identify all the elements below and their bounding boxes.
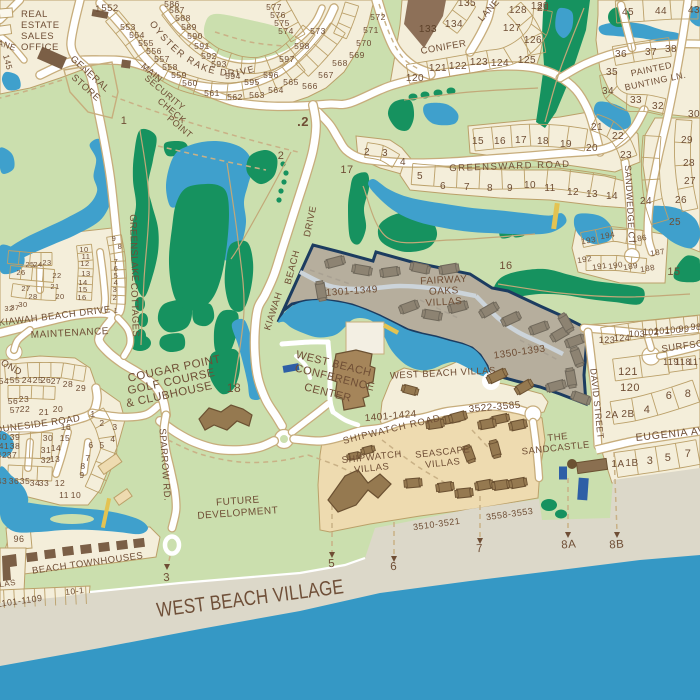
svg-text:1: 1: [90, 409, 95, 419]
svg-text:13: 13: [50, 454, 60, 464]
svg-text:21: 21: [39, 407, 49, 417]
svg-text:122: 122: [449, 61, 467, 72]
svg-text:593: 593: [211, 59, 227, 69]
svg-text:7: 7: [685, 448, 692, 460]
svg-text:32: 32: [4, 304, 13, 313]
svg-text:96: 96: [13, 534, 24, 544]
svg-text:12: 12: [567, 187, 579, 198]
svg-text:569: 569: [349, 50, 365, 60]
svg-text:8A: 8A: [561, 538, 577, 551]
svg-text:128: 128: [509, 5, 527, 16]
svg-text:18: 18: [227, 381, 241, 395]
svg-text:20: 20: [586, 143, 598, 154]
svg-text:8: 8: [118, 242, 123, 251]
svg-text:117: 117: [688, 357, 700, 367]
svg-text:43: 43: [688, 5, 700, 16]
svg-text:2B: 2B: [621, 409, 634, 420]
svg-text:30: 30: [18, 300, 27, 309]
svg-text:4: 4: [644, 404, 651, 416]
svg-text:10-1: 10-1: [65, 585, 85, 597]
svg-text:15: 15: [472, 136, 484, 147]
svg-text:125: 125: [518, 55, 536, 66]
svg-text:29: 29: [681, 135, 693, 146]
svg-text:127: 127: [503, 23, 521, 34]
svg-text:6: 6: [88, 440, 93, 450]
svg-text:5: 5: [417, 171, 423, 182]
svg-text:13: 13: [586, 189, 598, 200]
svg-text:55: 55: [10, 375, 20, 385]
svg-text:8B: 8B: [609, 538, 625, 551]
svg-text:28: 28: [63, 379, 73, 389]
svg-text:28: 28: [28, 292, 37, 301]
svg-text:16: 16: [77, 293, 86, 302]
svg-text:1: 1: [95, 4, 101, 14]
svg-text:561: 561: [204, 88, 220, 98]
svg-text:120: 120: [406, 73, 424, 84]
svg-text:570: 570: [356, 38, 372, 48]
svg-text:124: 124: [491, 58, 509, 69]
svg-text:36: 36: [615, 49, 627, 60]
svg-text:3: 3: [112, 422, 117, 432]
svg-text:11: 11: [544, 183, 555, 194]
svg-text:29: 29: [537, 3, 549, 14]
svg-text:1: 1: [121, 115, 128, 127]
svg-text:5: 5: [665, 452, 672, 464]
svg-text:18: 18: [537, 136, 549, 147]
svg-text:126: 126: [524, 35, 542, 46]
svg-text:30: 30: [688, 109, 700, 120]
svg-text:29: 29: [76, 383, 86, 393]
svg-text:25: 25: [669, 217, 681, 228]
svg-text:9: 9: [79, 470, 84, 480]
svg-text:121: 121: [618, 366, 638, 378]
svg-text:7: 7: [464, 182, 470, 193]
svg-text:35: 35: [606, 67, 618, 78]
svg-text:54: 54: [0, 376, 9, 386]
svg-text:5: 5: [328, 558, 336, 570]
svg-text:43: 43: [0, 476, 7, 486]
svg-text:16: 16: [61, 422, 71, 432]
svg-text:22: 22: [52, 271, 61, 280]
svg-text:22: 22: [612, 131, 624, 142]
svg-text:44: 44: [655, 6, 667, 17]
svg-text:34: 34: [602, 86, 614, 97]
svg-text:23: 23: [620, 150, 632, 161]
svg-text:3: 3: [647, 455, 654, 467]
svg-text:9: 9: [507, 183, 513, 194]
svg-text:13: 13: [81, 269, 90, 278]
svg-text:28: 28: [683, 158, 695, 169]
svg-text:4: 4: [110, 434, 115, 444]
svg-text:38: 38: [665, 44, 677, 55]
svg-text:33: 33: [39, 478, 49, 488]
svg-text:27: 27: [51, 376, 61, 386]
svg-text:20: 20: [55, 292, 64, 301]
svg-text:VILLAS: VILLAS: [425, 296, 462, 309]
svg-text:14: 14: [606, 191, 618, 202]
svg-text:30: 30: [43, 433, 53, 443]
svg-text:1A: 1A: [611, 459, 624, 470]
svg-text:8: 8: [685, 388, 692, 400]
svg-text:26: 26: [41, 375, 51, 385]
svg-text:2: 2: [113, 293, 118, 302]
svg-text:1B: 1B: [625, 458, 638, 469]
svg-text:OFFICE: OFFICE: [21, 42, 59, 53]
svg-text:11: 11: [59, 490, 69, 500]
svg-text:6: 6: [666, 390, 673, 402]
svg-text:577: 577: [266, 2, 282, 12]
svg-text:590: 590: [187, 31, 203, 41]
svg-text:17: 17: [340, 164, 353, 176]
svg-text:2: 2: [99, 418, 104, 428]
svg-text:6: 6: [440, 181, 446, 192]
svg-text:123: 123: [470, 57, 488, 68]
svg-text:12: 12: [80, 259, 89, 268]
svg-text:10: 10: [524, 180, 536, 191]
svg-text:562: 562: [227, 92, 243, 102]
svg-text:24: 24: [640, 196, 652, 207]
svg-text:597: 597: [279, 54, 295, 64]
svg-text:598: 598: [294, 41, 310, 51]
svg-text:560: 560: [182, 78, 198, 88]
svg-text:21: 21: [50, 282, 59, 291]
svg-text:24: 24: [33, 260, 42, 269]
svg-text:22: 22: [20, 404, 30, 414]
svg-text:3: 3: [382, 148, 388, 159]
svg-text:568: 568: [332, 58, 348, 68]
svg-text:567: 567: [318, 70, 334, 80]
svg-text:25: 25: [25, 260, 34, 269]
svg-text:20: 20: [53, 404, 63, 414]
svg-text:566: 566: [302, 81, 318, 91]
svg-text:32: 32: [652, 101, 664, 112]
svg-text:1: 1: [114, 306, 119, 315]
svg-text:595: 595: [244, 77, 260, 87]
svg-text:23: 23: [19, 394, 29, 404]
svg-text:120: 120: [620, 382, 640, 394]
svg-text:26: 26: [675, 195, 687, 206]
svg-text:12: 12: [55, 478, 65, 488]
svg-text:564: 564: [268, 85, 284, 95]
svg-text:16: 16: [494, 136, 506, 147]
svg-text:565: 565: [283, 77, 299, 87]
svg-text:45: 45: [622, 7, 634, 18]
svg-text:2: 2: [364, 147, 370, 158]
svg-text:16: 16: [499, 260, 512, 272]
svg-text:COTTAGES: COTTAGES: [128, 283, 141, 337]
svg-text:27: 27: [684, 176, 696, 187]
svg-text:23: 23: [42, 258, 51, 267]
svg-text:3: 3: [163, 572, 171, 584]
svg-text:4: 4: [400, 157, 406, 168]
svg-text:133: 133: [419, 24, 437, 35]
svg-text:9: 9: [112, 234, 117, 243]
svg-text:14: 14: [51, 443, 61, 453]
svg-text:24: 24: [22, 375, 32, 385]
svg-text:572: 572: [370, 12, 386, 22]
svg-text:26: 26: [16, 268, 25, 277]
svg-text:SALES: SALES: [21, 31, 54, 42]
svg-text:135: 135: [458, 0, 476, 9]
svg-text:37: 37: [7, 450, 17, 460]
svg-text:17: 17: [515, 135, 527, 146]
svg-text:591: 591: [194, 41, 210, 51]
svg-text:7: 7: [85, 453, 90, 463]
svg-text:37: 37: [645, 47, 657, 58]
svg-text:57: 57: [10, 405, 20, 415]
svg-text:596: 596: [263, 70, 279, 80]
svg-text:99: 99: [678, 324, 689, 334]
svg-text:563: 563: [249, 90, 265, 100]
svg-text:134: 134: [445, 19, 463, 30]
svg-text:552: 552: [101, 3, 118, 14]
svg-text:GREENSLAKE: GREENSLAKE: [127, 214, 140, 282]
svg-text:5: 5: [99, 440, 104, 450]
svg-text:98: 98: [690, 322, 700, 332]
svg-text:121: 121: [429, 63, 447, 74]
svg-text:19: 19: [560, 139, 572, 150]
svg-text:571: 571: [363, 25, 379, 35]
svg-text:10: 10: [71, 490, 81, 500]
svg-text:35: 35: [20, 476, 30, 486]
svg-text:15: 15: [60, 433, 70, 443]
svg-text:7: 7: [476, 543, 484, 555]
svg-text:6: 6: [390, 561, 398, 573]
svg-text:21: 21: [591, 122, 603, 133]
svg-text:33: 33: [630, 95, 642, 106]
svg-text:REAL: REAL: [21, 9, 48, 20]
svg-text:573: 573: [310, 26, 326, 36]
svg-text:594: 594: [225, 71, 241, 81]
svg-text:ESTATE: ESTATE: [21, 20, 60, 31]
svg-text:8: 8: [487, 183, 493, 194]
svg-text:.2: .2: [297, 114, 309, 129]
svg-text:2A: 2A: [605, 410, 618, 421]
svg-text:2: 2: [278, 150, 285, 162]
svg-text:36: 36: [9, 476, 19, 486]
svg-text:15: 15: [667, 266, 680, 278]
